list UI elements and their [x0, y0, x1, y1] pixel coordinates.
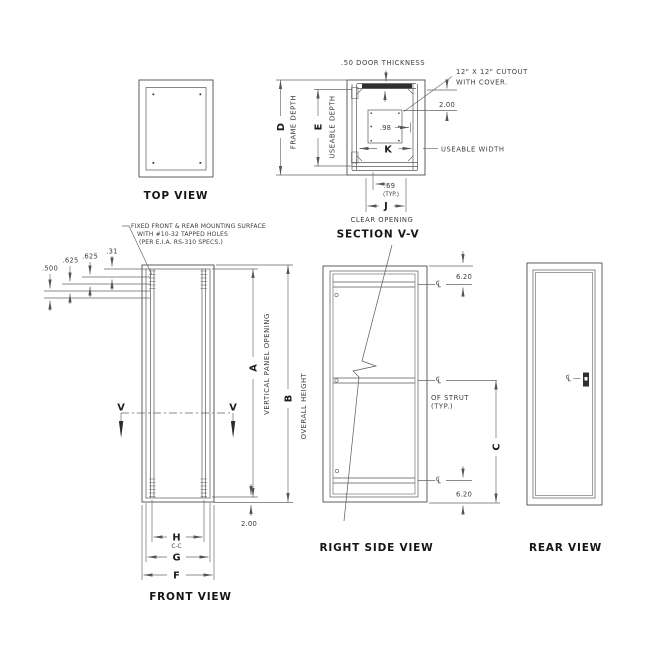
right-side-linework [323, 245, 427, 521]
cutout-note-line2: WITH COVER. [456, 79, 508, 87]
mounting-note-line1: FIXED FRONT & REAR MOUNTING SURFACE [131, 223, 266, 230]
useable-width-label: USEABLE WIDTH [441, 146, 505, 154]
top-view-linework [139, 80, 213, 177]
door-thickness-note: .50 DOOR THICKNESS [341, 59, 425, 67]
cutout-note-line1: 12" X 12" CUTOUT [456, 68, 528, 76]
hinge-block-bottom [352, 152, 359, 163]
dim-.625-b: .625 [82, 253, 98, 261]
dim-.98: .98 [380, 124, 391, 132]
right-side-view: 6.20 6.20 OF STRUT (TYP.) C RIGHT SIDE V… [319, 245, 502, 554]
dim-.625-a: .625 [63, 257, 79, 265]
right-side-view-title: RIGHT SIDE VIEW [319, 542, 433, 554]
top-view-title: TOP VIEW [144, 190, 209, 202]
dim-2.00-bottom: 2.00 [241, 520, 257, 528]
centerline-icon [436, 377, 441, 383]
dim-c-c-label: C-C [171, 544, 181, 550]
section-arrow-left [119, 421, 123, 438]
engineering-drawing: TOP VIEW [0, 0, 650, 650]
dim-letter-C: C [492, 443, 503, 450]
dim-.69-typ: (TYP.) [383, 192, 399, 198]
section-arrow-right [231, 421, 235, 438]
dim-letter-D: D [276, 123, 287, 131]
vertical-panel-opening-label: VERTICAL PANEL OPENING [263, 313, 271, 415]
mounting-note-line2: WITH #10-32 TAPPED HOLES [137, 231, 228, 238]
of-strut-label: OF STRUT [431, 394, 469, 402]
right-side-dimensions [418, 251, 500, 514]
rear-view: REAR VIEW [527, 263, 602, 554]
section-vv-dimensions [276, 71, 457, 213]
rear-view-linework [527, 263, 602, 505]
section-vv-title: SECTION V-V [337, 229, 420, 241]
frame-depth-label: FRAME DEPTH [290, 95, 298, 149]
section-label-v-left: V [117, 403, 125, 414]
dim-letter-H: H [172, 533, 180, 544]
of-strut-typ-label: (TYP.) [431, 403, 453, 411]
overall-height-label: OVERALL HEIGHT [300, 372, 308, 439]
useable-depth-label: USEABLE DEPTH [329, 95, 337, 158]
dim-.69: .69 [384, 182, 395, 190]
dim-letter-J: J [383, 201, 388, 212]
centerline-icon [436, 281, 441, 287]
dim-6.20-bottom: 6.20 [456, 491, 472, 499]
dim-2.00-cutout: 2.00 [439, 101, 455, 109]
top-view: TOP VIEW [139, 80, 213, 202]
dim-letter-A: A [249, 364, 260, 372]
centerline-icon [566, 375, 571, 381]
centerline-icon [436, 477, 441, 483]
front-view-linework [142, 265, 214, 502]
dim-letter-E: E [314, 124, 325, 131]
dim-letter-F: F [173, 571, 180, 582]
section-vv-view: .50 DOOR THICKNESS 12" X 12" CUTOUT WITH… [276, 59, 528, 241]
front-view-title: FRONT VIEW [149, 591, 232, 603]
dim-letter-B: B [284, 395, 295, 402]
rear-view-title: REAR VIEW [529, 542, 602, 554]
dim-.31: .31 [106, 248, 117, 256]
dim-.500: .500 [42, 265, 58, 273]
dim-letter-G: G [172, 553, 180, 564]
door-section-fill [362, 84, 412, 89]
dim-letter-K: K [384, 145, 392, 156]
dim-6.20-top: 6.20 [456, 273, 472, 281]
clear-opening-label: CLEAR OPENING [351, 216, 414, 224]
section-label-v-right: V [229, 403, 237, 414]
hinge-block-top [352, 88, 359, 99]
mounting-note-line3: (PER E.I.A. RS-310 SPECS.) [139, 239, 223, 246]
drawing-canvas: TOP VIEW [0, 0, 650, 650]
front-view: FIXED FRONT & REAR MOUNTING SURFACE WITH… [42, 223, 308, 603]
